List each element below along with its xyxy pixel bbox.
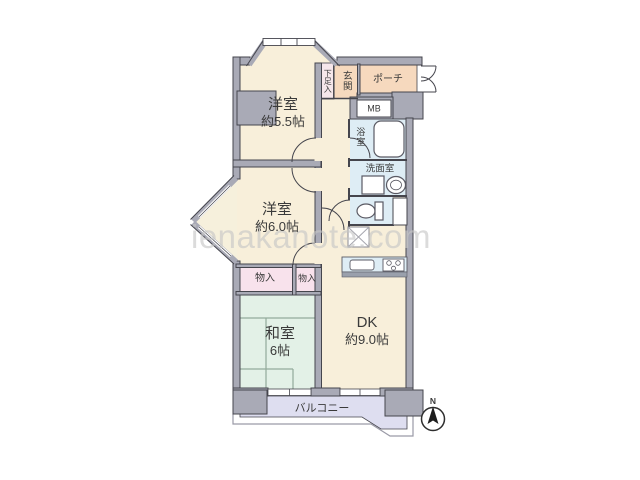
room-label-closet-left: 物入 bbox=[255, 273, 275, 285]
room-label-balcony: バルコニー bbox=[295, 402, 350, 415]
bathtub-icon bbox=[374, 121, 404, 157]
wall-east bbox=[406, 118, 413, 391]
wall-mb-block bbox=[392, 92, 423, 119]
wall-south-2 bbox=[311, 388, 340, 396]
wall-closet-bottom bbox=[236, 292, 321, 296]
wall-room-divider bbox=[233, 160, 321, 167]
room-label-meter-box: MB bbox=[367, 103, 381, 114]
wall-hall-divider bbox=[315, 63, 322, 391]
wall-balcony-block-left bbox=[233, 390, 267, 414]
wall-genkan-porch-divider bbox=[358, 64, 361, 95]
side-bay-floor bbox=[194, 179, 237, 261]
room-label-washroom: 洗面室 bbox=[366, 163, 395, 174]
bay-window-glass bbox=[263, 39, 315, 46]
floorplan: ienakanote.com 洋室 約5.5帖 洋室 約6.0帖 和室 6帖 D… bbox=[0, 0, 640, 480]
toilet-cabinet bbox=[393, 198, 407, 225]
room-label-porch: ポーチ bbox=[373, 74, 403, 86]
pipe-space-hatch bbox=[348, 227, 369, 247]
stove-icon bbox=[383, 259, 404, 271]
room-label-bath: 浴室 bbox=[355, 127, 366, 147]
room-label-dk: DK 約9.0帖 bbox=[345, 314, 389, 348]
wall-closet-top bbox=[236, 264, 321, 268]
wall-top-right bbox=[337, 57, 422, 65]
washer-icon bbox=[362, 176, 384, 194]
wall-left-lower bbox=[233, 261, 240, 391]
kitchen-sink-icon bbox=[350, 260, 374, 270]
room-label-yoshitsu60: 洋室 約6.0帖 bbox=[255, 201, 299, 235]
room-label-yoshitsu55: 洋室 約5.5帖 bbox=[261, 96, 305, 130]
compass-icon bbox=[422, 407, 445, 431]
room-label-closet-right: 物入 bbox=[298, 274, 316, 285]
toilet-tank bbox=[375, 202, 383, 220]
room-label-shoe-box: 下足入 bbox=[323, 69, 333, 93]
toilet-icon bbox=[357, 204, 375, 218]
kitchen-counter bbox=[342, 257, 407, 277]
compass-north-label: N bbox=[430, 396, 436, 406]
door-porch-lower bbox=[421, 77, 436, 92]
wall-balcony-block-right bbox=[385, 390, 423, 416]
room-label-washitsu: 和室 6帖 bbox=[265, 325, 295, 359]
wall-closet-divider bbox=[293, 264, 297, 295]
room-label-genkan: 玄関 bbox=[340, 71, 351, 92]
